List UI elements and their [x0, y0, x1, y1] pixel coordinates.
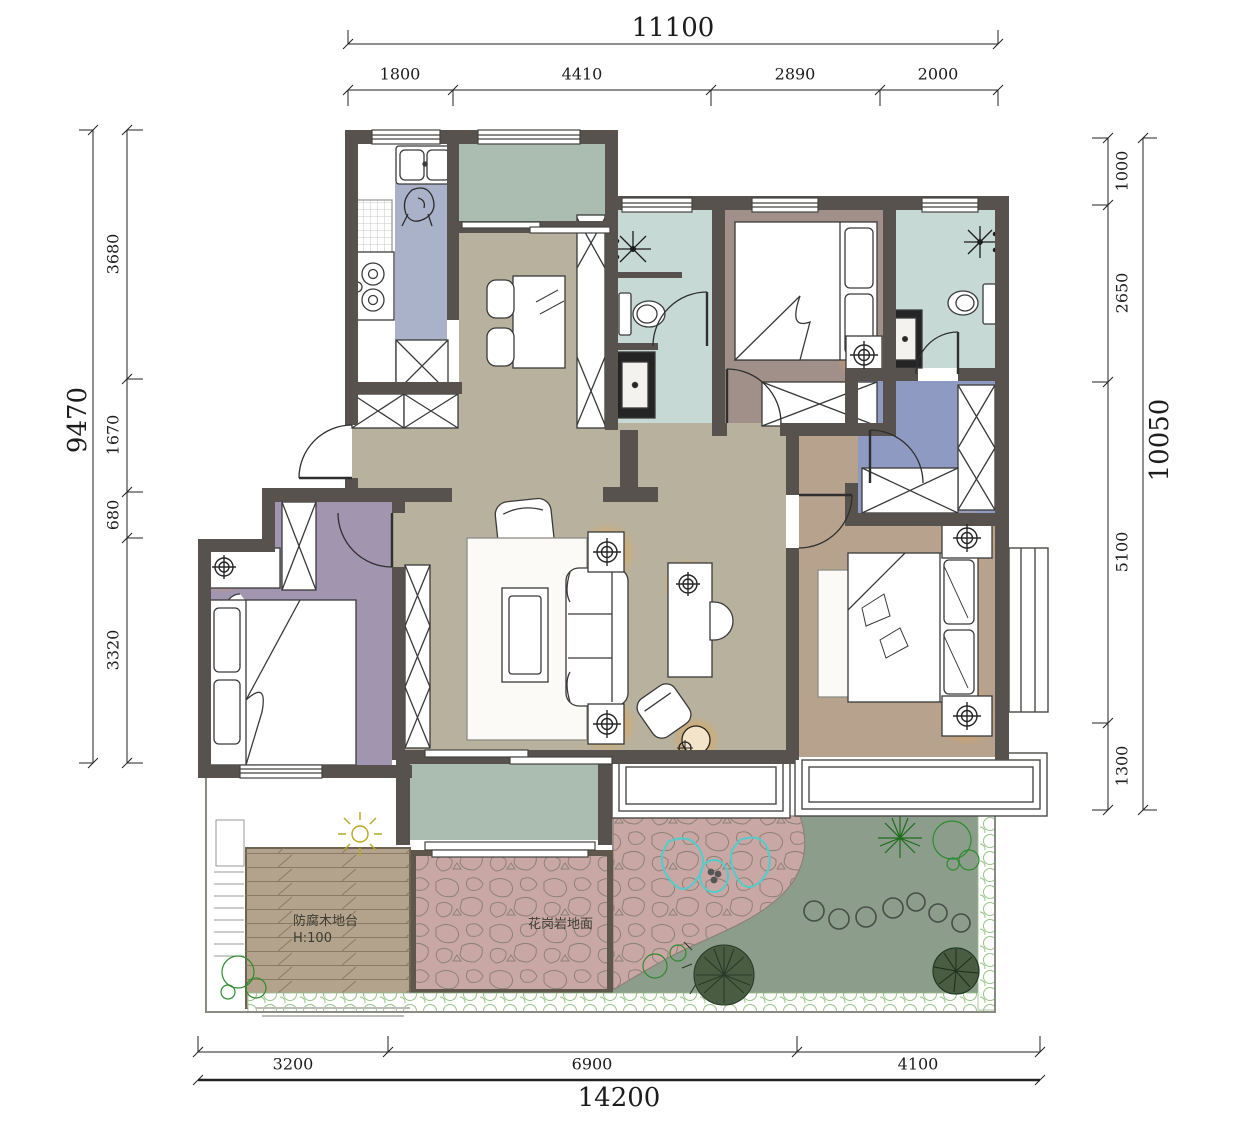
dark-tree-icon — [933, 948, 979, 994]
floor-plan-sheet: 11100 1800 4410 2890 2000 9470 3680 1670… — [0, 0, 1254, 1122]
dim-bottom-seg-1: 3200 — [273, 1055, 314, 1074]
bed-master — [848, 553, 978, 702]
east-bay-window — [1009, 548, 1048, 712]
porch-steps — [425, 842, 595, 857]
dim-bottom-total: 14200 — [578, 1083, 661, 1113]
dim-right-seg-1: 1000 — [1113, 151, 1132, 192]
dim-top-seg-4: 2000 — [918, 65, 959, 84]
dim-left-seg-1: 3680 — [104, 234, 123, 275]
entry-door — [299, 425, 352, 478]
dim-bottom-seg-2: 6900 — [572, 1055, 613, 1074]
kitchen-lower-cabinets — [352, 394, 458, 428]
coffee-table — [502, 588, 548, 682]
north-balcony-floor — [459, 144, 605, 226]
window-north-bedroom — [752, 198, 818, 212]
garden-bench — [216, 820, 244, 866]
dim-left-seg-4: 3320 — [104, 630, 123, 671]
deck-label: 防腐木地台 H:100 — [293, 913, 358, 947]
dining-chair — [487, 328, 514, 366]
dim-bottom-seg-3: 4100 — [898, 1055, 939, 1074]
dim-top-seg-1: 1800 — [380, 65, 421, 84]
floor-plan-drawing — [0, 0, 1254, 1122]
granite-label: 花岗岩地面 — [528, 916, 593, 933]
hedge-south-texture — [248, 993, 995, 1012]
vanity-main — [615, 352, 655, 418]
hedge-east-texture — [978, 816, 995, 1010]
south-porch-floor — [410, 760, 598, 840]
window-west-bedroom — [240, 765, 322, 778]
wardrobe-west-bedroom — [282, 502, 316, 590]
window-ensuite — [922, 198, 978, 212]
dim-left-seg-2: 1670 — [104, 415, 123, 456]
window-kitchen — [372, 130, 440, 144]
tv-cabinet — [405, 565, 430, 748]
window-main-bath — [622, 198, 692, 212]
dim-top-total: 11100 — [632, 13, 715, 43]
dining-chair — [487, 280, 514, 318]
sofa — [566, 568, 628, 706]
dining-table — [513, 276, 565, 368]
dining-cabinet — [577, 215, 605, 428]
deck-label-name: 防腐木地台 — [293, 913, 358, 930]
bed-west — [208, 600, 356, 765]
wardrobe-north — [762, 382, 877, 426]
master-window-seat — [795, 753, 1047, 816]
dim-right-seg-4: 1300 — [1113, 746, 1132, 787]
kitchen-sink — [396, 146, 454, 184]
dim-left-seg-3: 680 — [104, 500, 123, 531]
dim-top-seg-2: 4410 — [562, 65, 603, 84]
desk-west-bedroom — [205, 548, 280, 588]
dim-top-seg-3: 2890 — [775, 65, 816, 84]
dim-right-seg-2: 2650 — [1113, 273, 1132, 314]
window-balcony — [478, 130, 580, 144]
dim-right-seg-3: 5100 — [1113, 532, 1132, 573]
dim-right-total: 10050 — [1145, 399, 1175, 482]
dim-left-total: 9470 — [63, 387, 93, 453]
kitchen-stove — [352, 252, 394, 320]
deck-label-height: H:100 — [293, 930, 358, 947]
